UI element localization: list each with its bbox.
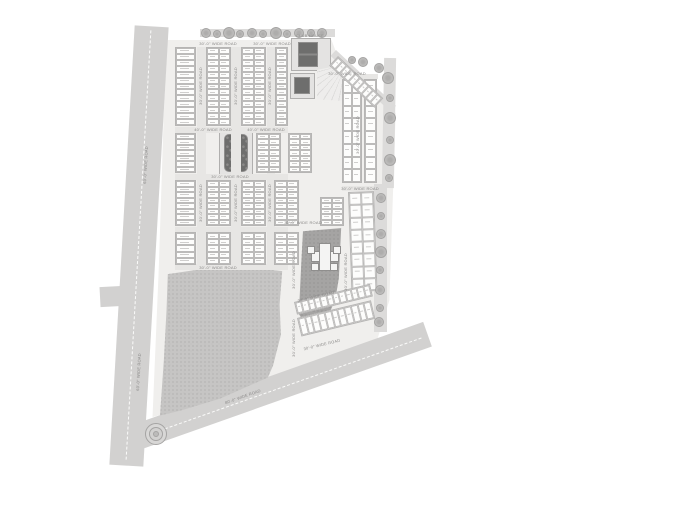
plot-block (175, 180, 196, 226)
plot-cell (207, 119, 219, 125)
plot-cell (289, 167, 300, 172)
tree-icon (213, 30, 221, 38)
tree-icon (382, 72, 394, 84)
plot-cell (365, 169, 376, 182)
plot-cell (176, 119, 195, 125)
plot-cell (275, 258, 287, 264)
road-label: 30'-0" WIDE ROAD (253, 42, 291, 46)
tree-icon (236, 30, 244, 38)
plot-cell (254, 119, 266, 125)
plot-cell (176, 220, 195, 226)
amenity-building-2 (294, 77, 310, 94)
road-label: 30'-0" WIDE ROAD (199, 266, 237, 270)
tower-building-wing (333, 246, 341, 254)
plot-cell (365, 131, 376, 144)
plot-cell (207, 220, 219, 226)
road-label: 30'-0" WIDE ROAD (268, 67, 272, 105)
plot-cell (332, 220, 343, 225)
tree-icon (283, 30, 291, 38)
plot-cell (343, 131, 352, 144)
tree-icon (386, 136, 394, 144)
plot-cell (321, 220, 332, 225)
plot-cell (364, 266, 376, 279)
tree-icon (247, 28, 257, 38)
plot-block (241, 180, 266, 226)
plot-cell (350, 217, 362, 230)
plot-cell (361, 192, 373, 205)
tree-icon (376, 304, 384, 312)
plot-block (256, 133, 281, 173)
plot-cell (276, 119, 287, 125)
plot-cell (219, 220, 231, 226)
plot-block (175, 232, 196, 265)
tree-icon (376, 229, 386, 239)
tree-icon (374, 63, 384, 73)
plot-cell (242, 119, 254, 125)
plot-block (206, 180, 231, 226)
road-label: 30'-0" WIDE ROAD (292, 251, 296, 289)
plot-cell (363, 241, 375, 254)
plot-block (175, 47, 196, 126)
tree-icon (375, 246, 387, 258)
plot-cell (352, 169, 361, 182)
plot-cell (343, 157, 352, 170)
plot-cell (349, 193, 361, 206)
roundabout-island (153, 431, 159, 437)
plot-block (241, 232, 266, 265)
road-label: 30'-0" WIDE ROAD (356, 116, 360, 154)
plot-block (206, 47, 231, 126)
road-label: 30'-0" WIDE ROAD (211, 175, 249, 179)
plot-cell (363, 285, 372, 297)
plot-cell (343, 93, 352, 106)
plot-cell (300, 167, 311, 172)
tree-icon (384, 112, 396, 124)
plot-cell (242, 220, 254, 226)
plot-cell (350, 229, 362, 242)
road-label: 30'-0" WIDE ROAD (292, 319, 296, 357)
roundabout-ring (149, 427, 163, 441)
plot-block (275, 47, 288, 126)
plot-cell (351, 242, 363, 255)
plot-cell (176, 167, 195, 172)
road-label: CLUB HOUSE (296, 34, 324, 38)
tree-icon (377, 212, 385, 220)
plot-cell (176, 258, 195, 264)
plot-block (241, 47, 266, 126)
tree-icon (358, 57, 368, 67)
tower-building-wing (311, 263, 319, 271)
plot-cell (254, 258, 266, 264)
plot-cell (351, 254, 363, 267)
tree-icon (348, 56, 356, 64)
plot-cell (349, 205, 361, 218)
plot-block (320, 197, 344, 226)
plot-cell (343, 118, 352, 131)
clubhouse-building (298, 42, 318, 67)
road-label: 30'-0" WIDE ROAD (234, 67, 238, 105)
road-label: 30'-0" WIDE ROAD (328, 72, 366, 76)
road-label: 30'-0" WIDE ROAD (199, 184, 203, 222)
road-label: 30'-0" WIDE ROAD (344, 253, 348, 291)
tower-building-wing (307, 246, 315, 254)
roundabout (145, 423, 167, 445)
plot-cell (219, 258, 231, 264)
tree-icon (385, 174, 393, 182)
road-label: 30'-0" WIDE ROAD (341, 187, 379, 191)
road-label: 40'-0" WIDE ROAD (194, 128, 232, 132)
tree-icon (201, 28, 211, 38)
tree-icon (375, 285, 385, 295)
road-label: 30'-0" WIDE ROAD (199, 42, 237, 46)
plot-cell (242, 258, 254, 264)
tree-icon (374, 317, 384, 327)
plot-cell (343, 106, 352, 119)
road-label: 30'-0" WIDE ROAD (284, 221, 322, 225)
plot-block (175, 133, 196, 173)
road-label: 30'-0" WIDE ROAD (199, 67, 203, 105)
plot-cell (269, 167, 281, 172)
tree-icon (376, 193, 386, 203)
plot-cell (343, 144, 352, 157)
site-plan-canvas: 30'-0" WIDE ROAD30'-0" WIDE ROAD30'-0" W… (0, 0, 700, 510)
plot-cell (352, 157, 361, 170)
road-label: 30'-0" WIDE ROAD (268, 184, 272, 222)
road-label: 40'-0" WIDE ROAD (247, 128, 285, 132)
plot-cell (361, 204, 373, 217)
plot-cell (363, 253, 375, 266)
plot-cell (365, 157, 376, 170)
plot-cell (254, 220, 266, 226)
plot-cell (362, 217, 374, 230)
plot-cell (343, 169, 352, 182)
tree-icon (386, 94, 394, 102)
tree-icon (270, 27, 282, 39)
plot-cell (365, 144, 376, 157)
tree-icon (259, 30, 267, 38)
plot-cell (365, 118, 376, 131)
tower-building-wing (330, 263, 338, 271)
plot-block (348, 191, 377, 292)
plot-block (288, 133, 312, 173)
plot-cell (352, 266, 364, 279)
plot-cell (219, 119, 231, 125)
road-label: 30'-0" WIDE ROAD (234, 184, 238, 222)
plot-cell (362, 229, 374, 242)
tree-icon (223, 27, 235, 39)
tree-icon (376, 266, 384, 274)
plot-cell (257, 167, 269, 172)
plot-block (206, 232, 231, 265)
plot-cell (207, 258, 219, 264)
tree-icon (384, 154, 396, 166)
